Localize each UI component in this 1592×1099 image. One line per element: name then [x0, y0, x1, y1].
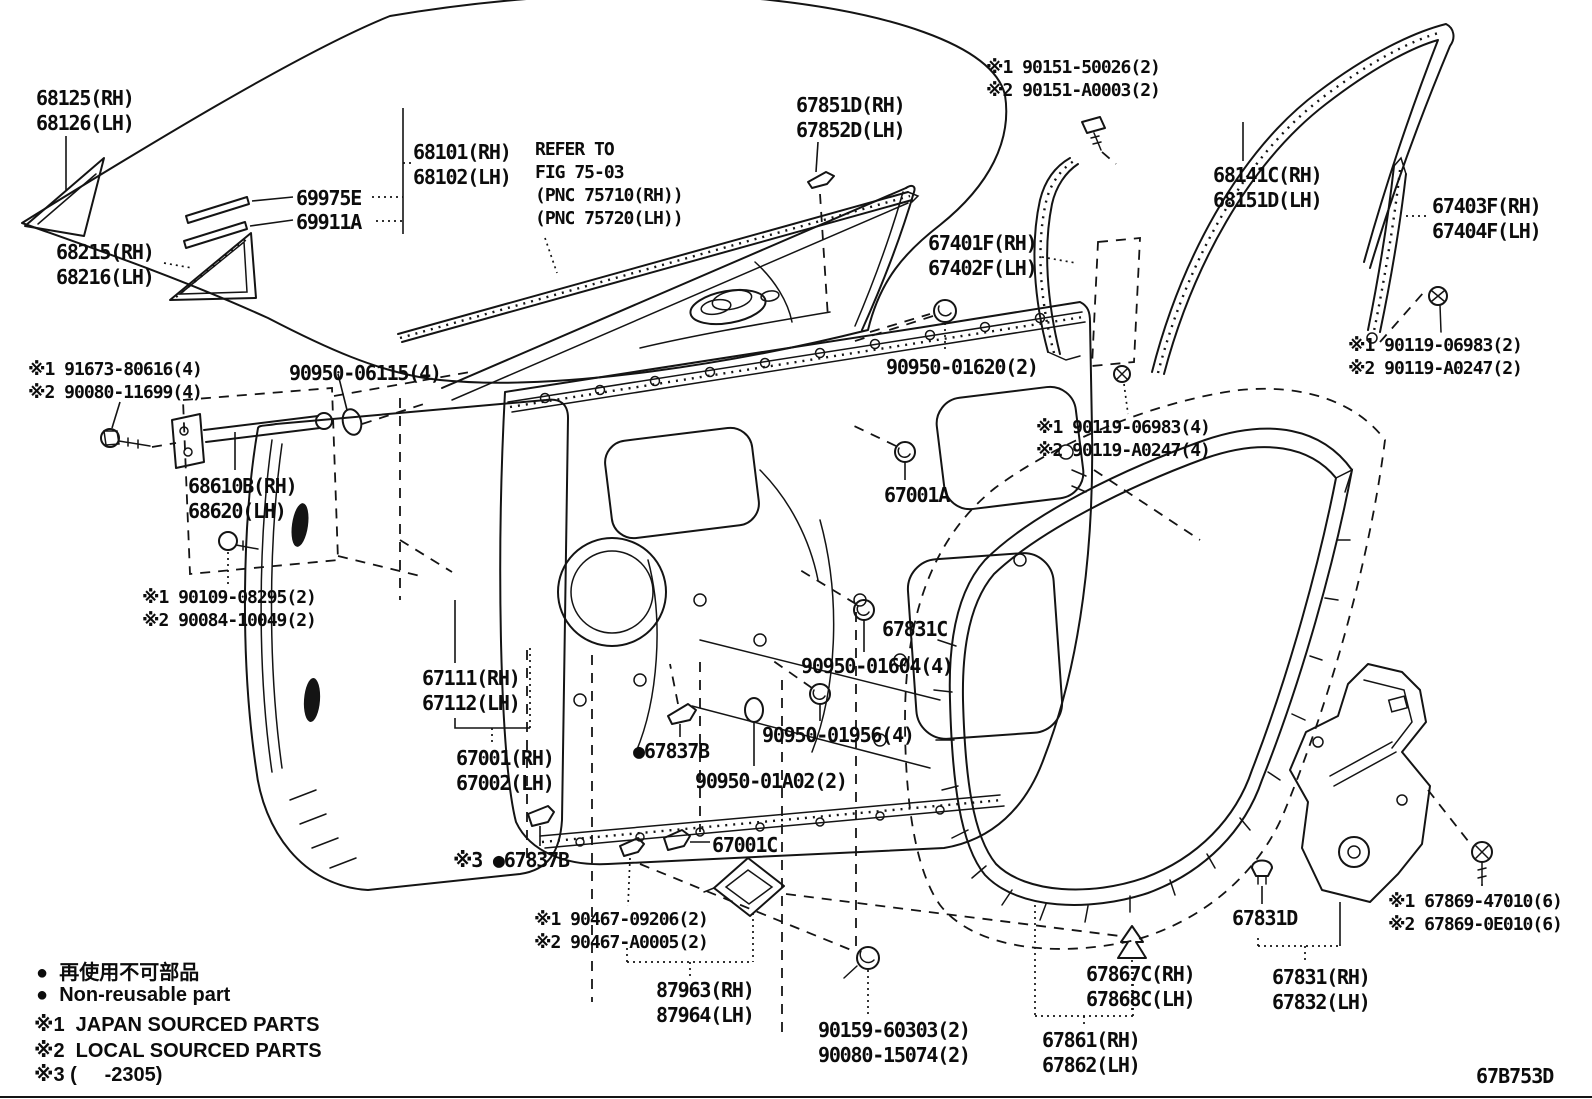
- callout-67001C: 67001C: [712, 833, 777, 858]
- callout-90950-06115: 90950-06115(4): [289, 361, 441, 386]
- callout-90950-01956: 90950-01956(4): [762, 723, 914, 748]
- callout-90950-01604: 90950-01604(4): [801, 654, 953, 679]
- callout-67837B-2: ※3 ●67837B: [453, 848, 569, 873]
- callout-90119-4: ※1 90119-06983(4) ※2 90119-A0247(4): [1036, 416, 1210, 462]
- callout-67831: 67831(RH) 67832(LH): [1272, 965, 1370, 1015]
- callout-90950-01A02: 90950-01A02(2): [695, 769, 847, 794]
- callout-69911A: 69911A: [296, 210, 361, 235]
- callout-91673: ※1 91673-80616(4) ※2 90080-11699(4): [28, 358, 202, 404]
- middle-fasteners-drawing: [528, 300, 956, 906]
- callout-69975E: 69975E: [296, 186, 361, 211]
- callout-67869: ※1 67869-47010(6) ※2 67869-0E010(6): [1388, 890, 1562, 936]
- legend-note2: ※2 LOCAL SOURCED PARTS: [34, 1038, 322, 1063]
- callout-90159: 90159-60303(2) 90080-15074(2): [818, 1018, 970, 1068]
- callout-68610B: 68610B(RH) 68620(LH): [188, 474, 296, 524]
- callout-90109: ※1 90109-08295(2) ※2 90084-10049(2): [142, 586, 316, 632]
- callout-68141C: 68141C(RH) 68151D(LH): [1213, 163, 1321, 213]
- callout-67111: 67111(RH) 67112(LH): [422, 666, 520, 716]
- diagram-line-art: [0, 0, 1592, 1099]
- callout-67861: 67861(RH) 67862(LH): [1042, 1028, 1140, 1078]
- callout-90151: ※1 90151-50026(2) ※2 90151-A0003(2): [986, 56, 1160, 102]
- grommet-06115-drawing: [338, 374, 452, 600]
- screw-90159-drawing: [844, 947, 879, 1014]
- callout-67867C: 67867C(RH) 67868C(LH): [1086, 962, 1194, 1012]
- callout-67831D: 67831D: [1232, 906, 1297, 931]
- legend-note3: ※3 ( -2305): [34, 1062, 162, 1087]
- callout-67851D: 67851D(RH) 67852D(LH): [796, 93, 904, 143]
- legend-nonreusable-jp: ● 再使用不可部品: [36, 956, 199, 985]
- callout-90467: ※1 90467-09206(2) ※2 90467-A0005(2): [534, 908, 708, 954]
- callout-67401F: 67401F(RH) 67402F(LH): [928, 231, 1036, 281]
- callout-67001A: 67001A: [884, 483, 949, 508]
- legend-nonreusable-en: ● Non-reusable part: [36, 984, 230, 1007]
- callout-67001: 67001(RH) 67002(LH): [456, 746, 554, 796]
- callout-67831C: 67831C: [882, 617, 947, 642]
- opening-weatherstrip-drawing: [905, 389, 1385, 1028]
- vent-seal-drawing: [164, 233, 256, 300]
- parts-diagram-page: 68125(RH) 68126(LH) 68101(RH) 68102(LH) …: [0, 0, 1592, 1099]
- figure-code: 67B753D: [1476, 1064, 1553, 1088]
- legend-note1: ※1 JAPAN SOURCED PARTS: [34, 1012, 319, 1037]
- callout-90119-2: ※1 90119-06983(2) ※2 90119-A0247(2): [1348, 334, 1522, 380]
- door-glass-drawing: [22, 0, 1006, 383]
- callout-87963: 87963(RH) 87964(LH): [656, 978, 754, 1028]
- callout-67837B: ●67837B: [633, 739, 709, 764]
- callout-67403F: 67403F(RH) 67404F(LH): [1432, 194, 1540, 244]
- callout-90950-01620: 90950-01620(2): [886, 355, 1038, 380]
- callout-68125: 68125(RH) 68126(LH): [36, 86, 134, 136]
- callout-68215: 68215(RH) 68216(LH): [56, 240, 154, 290]
- callout-68101: 68101(RH) 68102(LH): [413, 140, 511, 190]
- belt-molding-clip-drawing: [808, 142, 834, 318]
- callout-refer-note: REFER TO FIG 75-03 (PNC 75710(RH)) (PNC …: [535, 138, 683, 230]
